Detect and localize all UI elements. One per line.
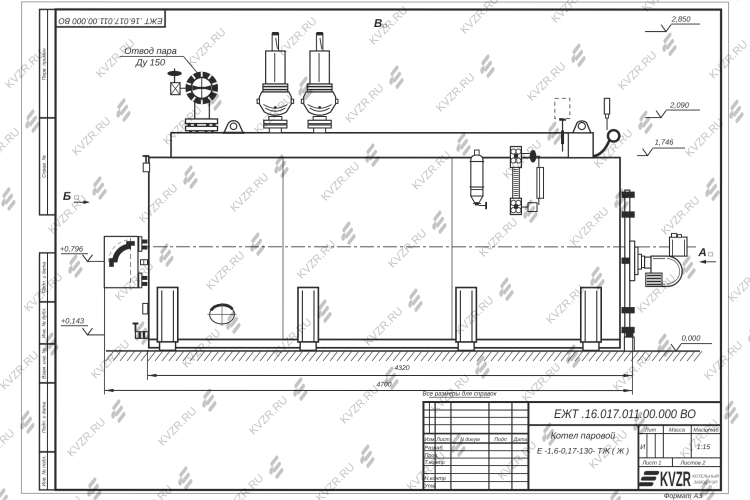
svg-text:Формат А3: Формат А3 (664, 493, 702, 500)
svg-text:+0,796: +0,796 (60, 244, 84, 253)
svg-text:+0,143: +0,143 (61, 316, 85, 325)
svg-text:2,090: 2,090 (669, 101, 690, 110)
svg-text:0,000: 0,000 (682, 334, 702, 343)
svg-text:Б: Б (63, 191, 71, 203)
svg-text:Изм: Изм (425, 437, 435, 443)
svg-text:ЕЖТ .16.017.011.00.000 ВО: ЕЖТ .16.017.011.00.000 ВО (554, 407, 696, 421)
svg-text:Взам. инв. №: Взам. инв. № (41, 347, 47, 379)
svg-text:Инв. № подл.: Инв. № подл. (41, 455, 47, 486)
svg-text:ЕЖТ .16.017.011.00.000 ВО: ЕЖТ .16.017.011.00.000 ВО (58, 16, 163, 25)
svg-text:Ду 150: Ду 150 (135, 57, 166, 67)
svg-text:Инв. № дубл.: Инв. № дубл. (41, 308, 47, 339)
svg-text:Подп. и дата: Подп. и дата (41, 402, 47, 434)
svg-text:А: А (697, 247, 706, 259)
svg-text:Перв. примен.: Перв. примен. (41, 47, 47, 80)
svg-text:Утв.: Утв. (423, 483, 436, 489)
svg-text:Дата: Дата (513, 437, 528, 443)
svg-text:4320: 4320 (394, 365, 409, 372)
svg-text:Подп: Подп (494, 437, 507, 443)
svg-text:Котел паровой: Котел паровой (551, 431, 616, 441)
svg-text:1,746: 1,746 (655, 138, 675, 147)
svg-text:КОТЕЛЬНЫЙ: КОТЕЛЬНЫЙ (692, 474, 718, 479)
svg-text:Разраб.: Разраб. (424, 445, 444, 451)
svg-text:Листов 2: Листов 2 (679, 461, 706, 467)
svg-text:KVZR: KVZR (660, 468, 691, 491)
svg-text:Лист 1: Лист 1 (641, 461, 661, 467)
svg-text:N докум: N докум (460, 437, 480, 443)
svg-text:2,850: 2,850 (671, 15, 692, 24)
svg-text:Масса: Масса (669, 428, 685, 434)
svg-text:Справ. №: Справ. № (41, 154, 47, 177)
svg-text:Лист: Лист (435, 437, 450, 443)
